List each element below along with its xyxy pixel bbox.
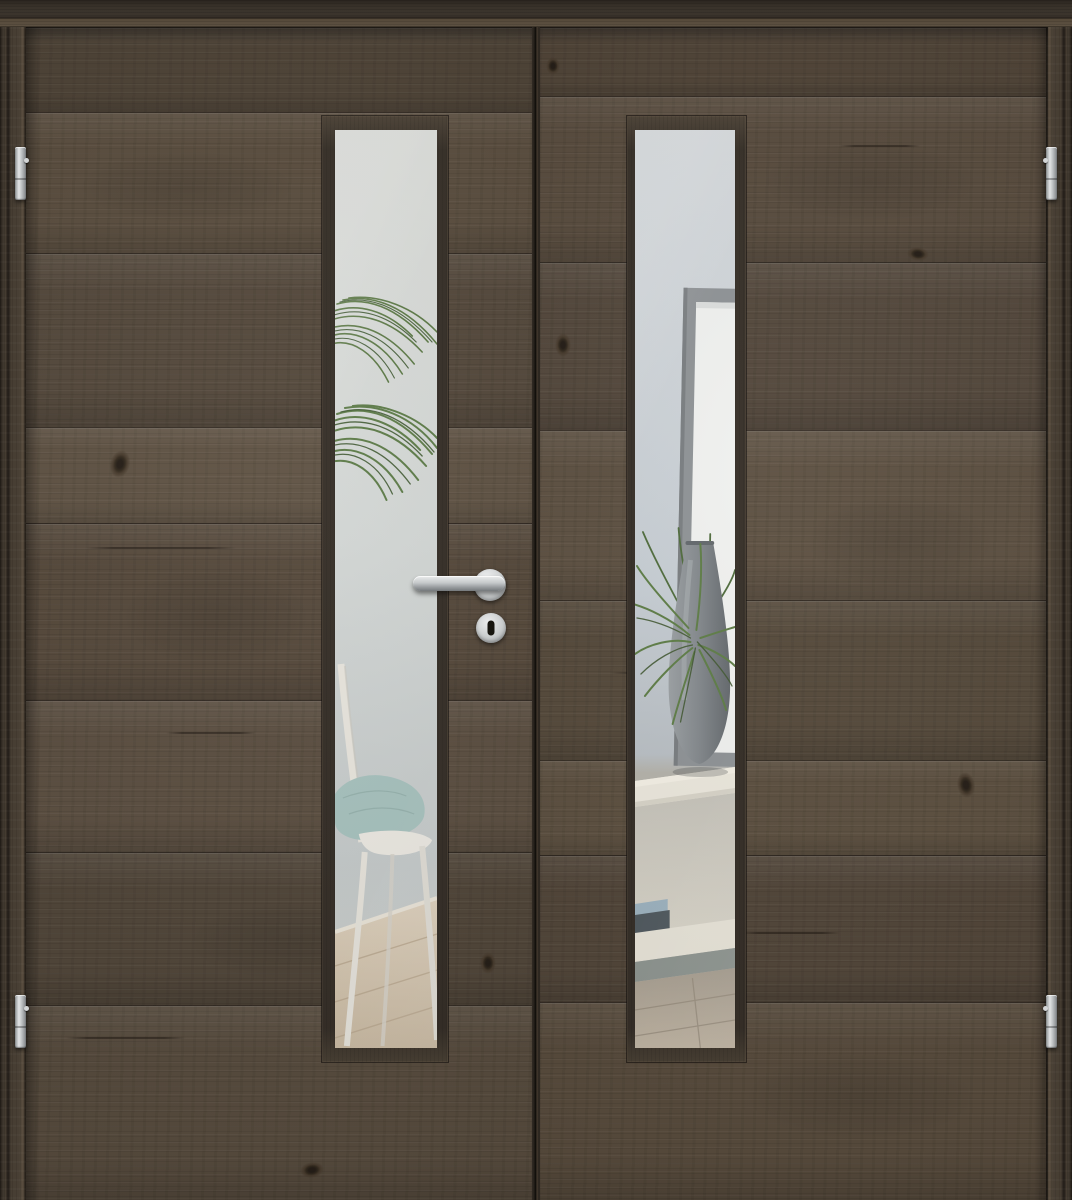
plank: [540, 1002, 1048, 1200]
interior-scene-right: [635, 130, 735, 1048]
plank: [26, 700, 532, 852]
plank: [26, 27, 532, 112]
plank: [26, 253, 532, 427]
plank: [540, 760, 1048, 855]
keyhole: [488, 621, 495, 636]
sideboard: [635, 767, 735, 1048]
plank: [540, 27, 1048, 96]
center-meeting-stile: [531, 27, 541, 1200]
plank: [26, 427, 532, 523]
glass-lite-right: [635, 130, 735, 1048]
door-leaf-left: [26, 27, 532, 1200]
hinge-lower-left: [15, 995, 26, 1048]
door-frame-head: [0, 0, 1072, 27]
plank: [26, 523, 532, 700]
plank: [540, 430, 1048, 600]
keyhole-escutcheon: [476, 613, 506, 643]
hinge-upper-left: [15, 147, 26, 200]
plank: [540, 262, 1048, 430]
plank: [26, 1005, 532, 1200]
glazing-frame-right: [627, 116, 746, 1062]
plank: [540, 600, 1048, 760]
plank: [26, 112, 532, 253]
plank: [540, 855, 1048, 1002]
plank: [540, 96, 1048, 262]
door-leaf-right: [540, 27, 1048, 1200]
hinge-upper-right: [1046, 147, 1057, 200]
plank: [26, 852, 532, 1005]
lever-handle: [413, 576, 505, 591]
double-door-product-image: [0, 0, 1072, 1200]
hinge-lower-right: [1046, 995, 1057, 1048]
